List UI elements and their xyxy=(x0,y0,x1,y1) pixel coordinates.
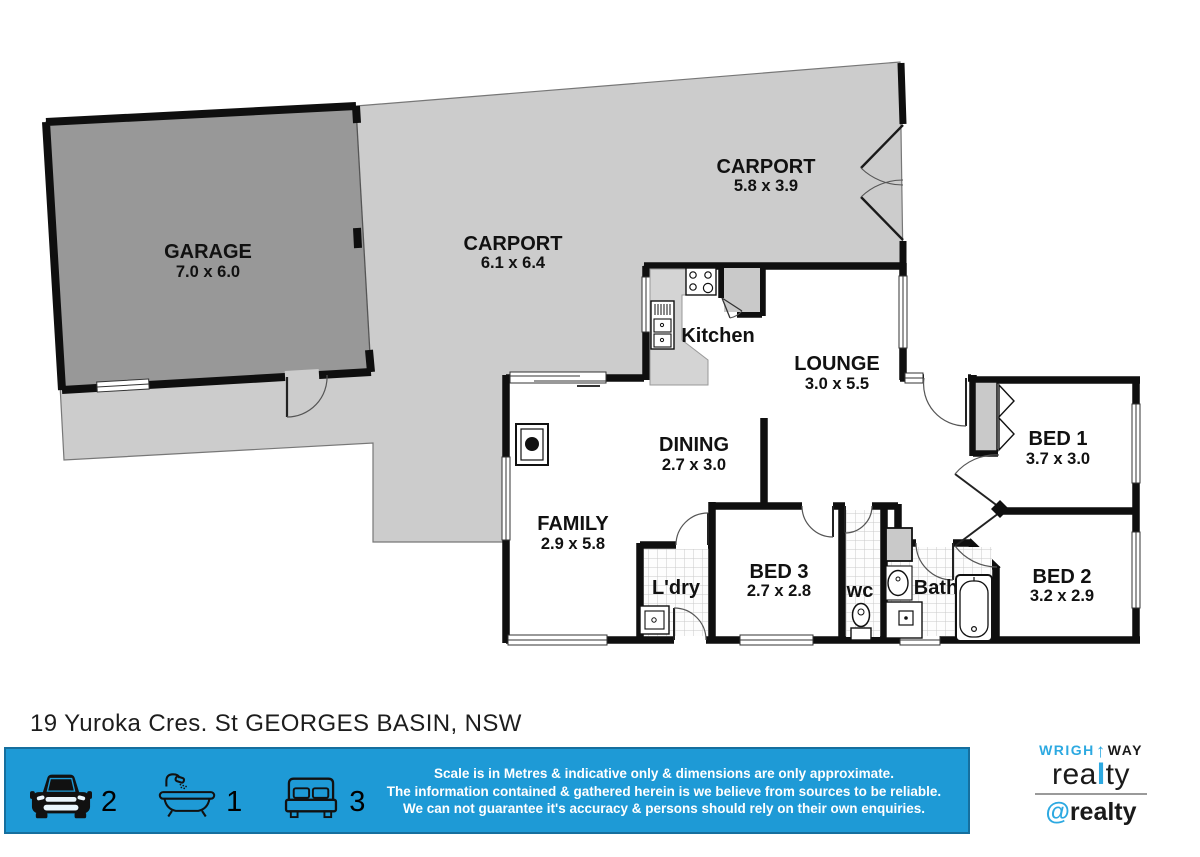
laundry-trough-icon xyxy=(640,606,669,634)
svg-text:FAMILY: FAMILY xyxy=(537,513,609,535)
floor-plan: GARAGE 7.0 x 6.0 CARPORT 6.1 x 6.4 CARPO… xyxy=(0,0,1200,700)
bed1-window xyxy=(1132,404,1140,483)
basin-icon xyxy=(886,566,912,600)
family-left-window xyxy=(502,457,510,540)
svg-text:wc: wc xyxy=(846,580,874,602)
pantry xyxy=(722,268,760,318)
svg-text:2.7 x 2.8: 2.7 x 2.8 xyxy=(747,582,811,600)
bed-icon xyxy=(282,771,340,819)
svg-text:LOUNGE: LOUNGE xyxy=(794,353,880,375)
label-bath: Bath xyxy=(914,577,958,599)
fireplace-icon xyxy=(516,424,548,465)
logo-line-realty: realty xyxy=(1028,759,1154,791)
svg-text:L'dry: L'dry xyxy=(652,577,701,599)
label-lounge: LOUNGE 3.0 x 5.5 xyxy=(794,353,880,393)
bath-count: 1 xyxy=(226,788,242,819)
svg-text:3.7 x 3.0: 3.7 x 3.0 xyxy=(1026,450,1090,468)
svg-text:BED 1: BED 1 xyxy=(1029,428,1088,450)
info-banner: 2 1 xyxy=(4,747,970,834)
shower-icon xyxy=(886,602,922,638)
hall-window xyxy=(905,373,923,383)
svg-text:2.9 x 5.8: 2.9 x 5.8 xyxy=(541,535,605,553)
svg-text:5.8 x 3.9: 5.8 x 3.9 xyxy=(734,177,798,195)
svg-text:BED 2: BED 2 xyxy=(1033,566,1092,588)
disclaimer-line: Scale is in Metres & indicative only & d… xyxy=(358,765,970,783)
svg-text:CARPORT: CARPORT xyxy=(717,156,816,178)
svg-text:BED 3: BED 3 xyxy=(750,561,809,583)
svg-text:Bath: Bath xyxy=(914,577,958,599)
svg-text:Kitchen: Kitchen xyxy=(681,325,754,347)
bed2-window xyxy=(1132,532,1140,608)
toilet-icon xyxy=(851,604,871,641)
label-bed1: BED 1 3.7 x 3.0 xyxy=(1026,428,1090,468)
svg-text:GARAGE: GARAGE xyxy=(164,241,252,263)
family-bottom-window xyxy=(508,635,607,645)
agency-logo: WRIGH↑WAY realty @realty xyxy=(1028,742,1154,826)
label-laundry: L'dry xyxy=(652,577,701,599)
page-title: 19 Yuroka Cres. St GEORGES BASIN, NSW xyxy=(30,710,522,738)
disclaimer-line: We can not guarantee it's accuracy & per… xyxy=(358,800,970,818)
label-family: FAMILY 2.9 x 5.8 xyxy=(537,513,609,553)
svg-text:2.7 x 3.0: 2.7 x 3.0 xyxy=(662,456,726,474)
bed3-window xyxy=(740,635,813,645)
svg-text:3.0 x 5.5: 3.0 x 5.5 xyxy=(805,375,869,393)
linen-cupboard xyxy=(886,528,912,561)
disclaimer-text: Scale is in Metres & indicative only & d… xyxy=(358,765,970,818)
svg-text:3.2 x 2.9: 3.2 x 2.9 xyxy=(1030,587,1094,605)
bath-icon xyxy=(157,769,217,819)
car-count: 2 xyxy=(101,788,117,819)
logo-line-atrealty: @realty xyxy=(1028,799,1154,825)
svg-text:7.0 x 6.0: 7.0 x 6.0 xyxy=(176,263,240,281)
feature-baths: 1 xyxy=(157,769,242,819)
label-bed2: BED 2 3.2 x 2.9 xyxy=(1030,566,1094,605)
label-garage: GARAGE 7.0 x 6.0 xyxy=(164,241,252,281)
bathtub-icon xyxy=(956,575,992,641)
fridge-icon xyxy=(651,301,674,349)
disclaimer-line: The information contained & gathered her… xyxy=(358,783,970,801)
svg-text:CARPORT: CARPORT xyxy=(464,233,563,255)
stove-icon xyxy=(686,268,716,295)
lounge-window xyxy=(899,276,907,348)
label-dining: DINING 2.7 x 3.0 xyxy=(659,434,729,474)
feature-summary: 2 1 xyxy=(30,769,405,819)
kitchen-window xyxy=(642,277,650,332)
svg-text:DINING: DINING xyxy=(659,434,729,456)
label-kitchen: Kitchen xyxy=(681,325,754,347)
label-bed3: BED 3 2.7 x 2.8 xyxy=(747,561,811,600)
logo-divider xyxy=(1035,793,1147,795)
car-icon xyxy=(30,771,92,819)
feature-beds: 3 xyxy=(282,771,365,819)
feature-cars: 2 xyxy=(30,771,117,819)
label-wc: wc xyxy=(846,580,874,602)
svg-text:6.1 x 6.4: 6.1 x 6.4 xyxy=(481,254,546,272)
